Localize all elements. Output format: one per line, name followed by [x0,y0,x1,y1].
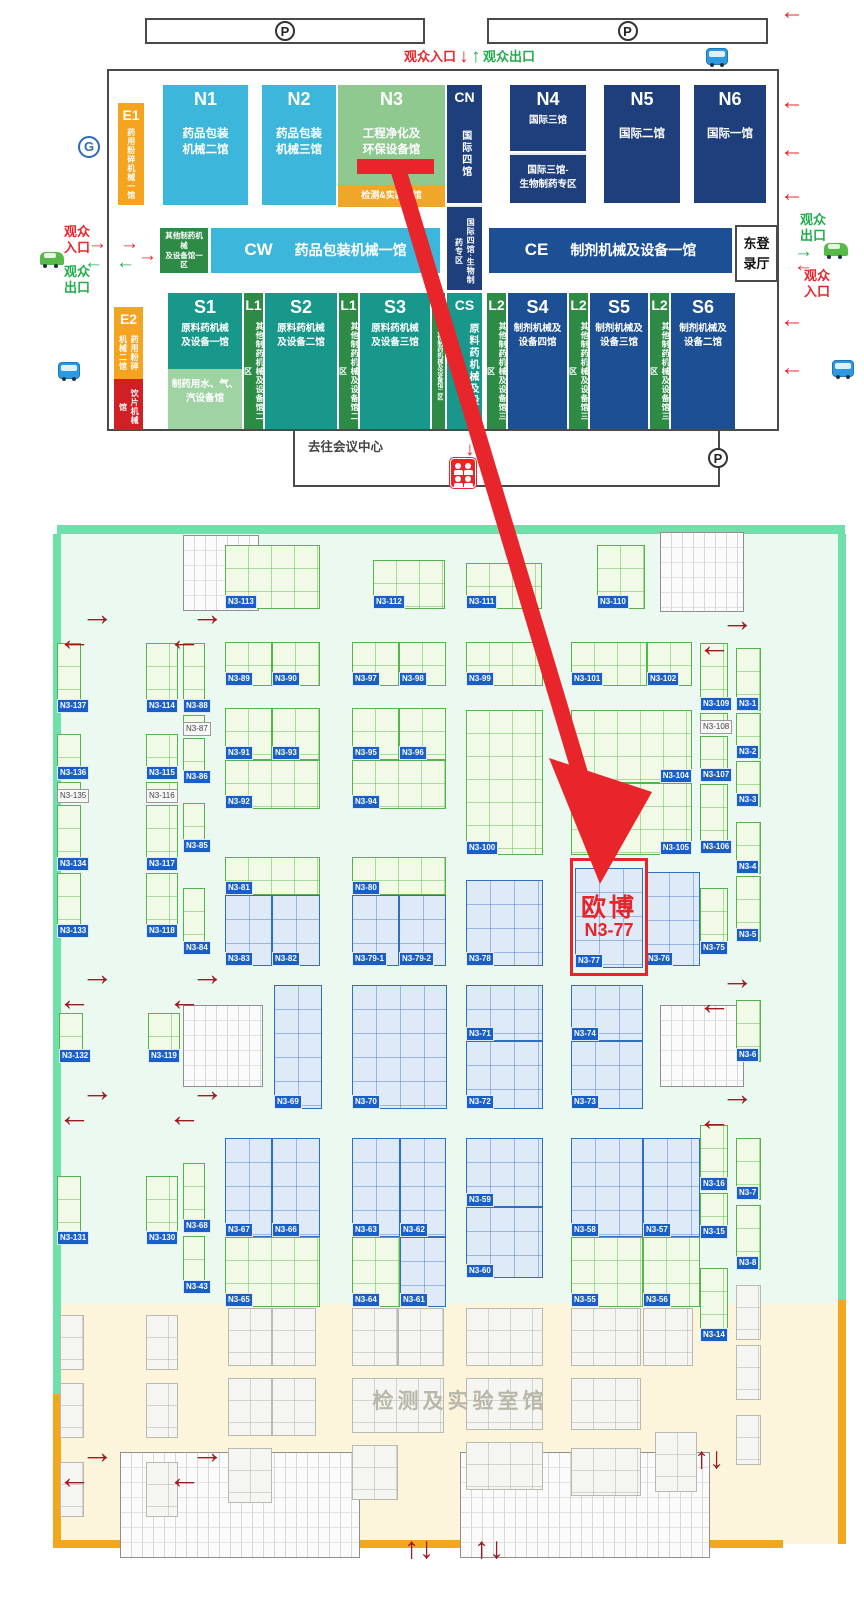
booth-label: N3-2 [736,745,759,759]
booth-N3-2: N3-2 [736,713,761,759]
expo-map-image: P P 观众入口 ↓ ↑ 观众出口 E1药用粉碎机械一馆N1药品包装 机械二馆N… [0,0,864,1600]
booth-label: N3-81 [225,881,253,895]
booth-N3-116: N3-116 [146,782,178,803]
booth-N3-57: N3-57 [643,1138,700,1237]
booth-label: N3-16 [700,1177,728,1191]
booth-N3-8: N3-8 [736,1205,761,1270]
car-icon [40,252,64,265]
booth-label: N3-102 [647,672,679,686]
booth-label: N3-83 [225,952,253,966]
booth-label: N3-100 [466,841,498,855]
booth-N3-110: N3-110 [597,545,645,609]
booth-label: N3-75 [700,941,728,955]
booth-unlabeled [352,1308,398,1366]
booth-label: N3-4 [736,860,759,874]
booth-unlabeled [571,1448,641,1496]
booth-label: N3-101 [571,672,603,686]
gate-arrow-icon: ← [780,182,804,206]
conference-down-arrow-icon: ↓ [465,440,475,459]
booth-unlabeled [272,1378,316,1436]
booth-label: N3-78 [466,952,494,966]
booth-label: N3-93 [272,746,300,760]
booth-label: N3-64 [352,1293,380,1307]
booth-label: N3-90 [272,672,300,686]
booth-label: N3-84 [183,941,211,955]
booth-N3-104: N3-104 [571,710,692,783]
entrance-arrows-icon: →← [58,602,114,652]
hall-S6: S6制剂机械及 设备二馆 [671,293,735,429]
gate-arrow-icon: ← [780,308,804,332]
booth-unlabeled [466,1442,543,1490]
booth-label: N3-63 [352,1223,380,1237]
booth-label: N3-95 [352,746,380,760]
booth-label: N3-15 [700,1225,728,1239]
booth-N3-90: N3-90 [272,642,320,686]
hall-其他制药机械及设备馆二区: 其他制药机械及设备馆二区 [432,293,445,429]
booth-label: N3-55 [571,1293,599,1307]
booth-unlabeled [736,1345,761,1400]
booth-N3-117: N3-117 [146,805,178,871]
highlight-booth-number: N3-77 [566,920,652,941]
booth-label: N3-3 [736,793,759,807]
booth-N3-74: N3-74 [571,985,643,1041]
hall-CS: CS原料药机械及设备馆 [447,293,482,429]
booth-unlabeled [466,1308,543,1366]
booth-label: N3-5 [736,928,759,942]
booth-label: N3-79-2 [399,952,434,966]
booth-label: N3-131 [57,1231,89,1245]
car-icon [824,243,848,256]
booth-unlabeled [146,1383,178,1438]
booth-unlabeled [60,1315,84,1370]
booth-unlabeled [272,1308,316,1366]
booth-N3-119: N3-119 [148,1013,180,1063]
highlight-exhibitor-name: 欧博 [566,888,652,924]
booth-N3-132: N3-132 [59,1013,83,1063]
hall-N1: N1药品包装 机械二馆 [163,85,248,205]
booth-label: N3-82 [272,952,300,966]
booth-label: N3-69 [274,1095,302,1109]
booth-N3-58: N3-58 [571,1138,643,1237]
booth-N3-82: N3-82 [272,895,320,966]
booth-unlabeled [146,1315,178,1370]
booth-label: N3-98 [399,672,427,686]
booth-N3-78: N3-78 [466,880,543,966]
booth-label: N3-117 [146,857,178,871]
entrance-arrows-icon: ↑↓ [474,1534,504,1564]
booth-label: N3-80 [352,881,380,895]
booth-label: N3-111 [466,595,497,609]
booth-label: N3-116 [146,789,178,803]
hall-CW: CW药品包装机械一馆 [211,228,440,273]
entrance-arrow-icon: → [138,246,157,265]
booth-label: N3-58 [571,1223,599,1237]
hall-N5: N5国际二馆 [604,85,680,203]
bus-icon [832,360,854,377]
parking-icon: P [275,21,295,41]
booth-label: N3-108 [700,720,732,734]
visitor-exit-label-left: 观众出口 [62,264,92,297]
booth-label: N3-57 [643,1223,671,1237]
hall-L2: L2其他制药机械及设备馆三区 [569,293,588,429]
booth-N3-55: N3-55 [571,1237,643,1307]
booth-label: N3-91 [225,746,253,760]
booth-N3-79-1: N3-79-1 [352,895,399,966]
booth-label: N3-105 [660,841,692,855]
booth-label: N3-70 [352,1095,380,1109]
entrance-arrows-icon: →← [698,966,754,1016]
booth-label: N3-72 [466,1095,494,1109]
hall-其他制药机械 及设备馆一区: 其他制药机械 及设备馆一区 [160,228,208,273]
booth-unlabeled [736,1415,761,1465]
hall-N3: N3工程净化及 环保设备馆 [338,85,445,185]
booth-N3-62: N3-62 [400,1138,446,1237]
booth-N3-92: N3-92 [225,760,320,809]
hall-L2: L2其他制药机械及设备馆三区 [487,293,506,429]
booth-N3-113: N3-113 [225,545,320,609]
hall-L1: L1其他制药机械及设备馆二区 [339,293,358,429]
entrance-arrows-icon: →← [58,1440,114,1490]
entrance-arrows-icon: →← [168,602,224,652]
booth-label: N3-109 [700,697,732,711]
gate-arrow-icon: ← [780,90,804,114]
exit-arrow-icon: ← [116,253,135,272]
booth-unlabeled [643,1308,693,1366]
booth-label: N3-136 [57,766,89,780]
booth-N3-79-2: N3-79-2 [399,895,446,966]
entrance-arrow-icon: → [88,234,107,253]
booth-unlabeled [228,1378,272,1436]
booth-unlabeled [228,1308,272,1366]
booth-N3-102: N3-102 [647,642,692,686]
booth-label: N3-71 [466,1027,494,1041]
visitor-entrance-label-right: 观众入口 [802,268,832,301]
booth-label: N3-86 [183,770,211,784]
hall-检测&实验室馆: 检测&实验室馆 [338,185,445,207]
booth-label: N3-107 [700,768,732,782]
booth-label: N3-92 [225,795,253,809]
booth-N3-94: N3-94 [352,760,446,809]
booth-N3-66: N3-66 [272,1138,320,1237]
booth-N3-136: N3-136 [57,734,81,780]
booth-N3-15: N3-15 [700,1193,728,1239]
metro-icon: G [78,136,100,158]
booth-label: N3-106 [700,840,732,854]
hall-国际三馆- 生物制药专区: 国际三馆- 生物制药专区 [510,153,586,203]
booth-label: N3-104 [660,769,692,783]
booth-N3-100: N3-100 [466,710,543,855]
hall-S4: S4制剂机械及 设备四馆 [508,293,567,429]
lab-zone-watermark: 检测及实验室馆 [330,1385,590,1415]
booth-N3-67: N3-67 [225,1138,272,1237]
entrance-arrows-icon: →← [58,962,114,1012]
booth-N3-76: N3-76 [645,872,700,966]
booth-label: N3-60 [466,1264,494,1278]
booth-N3-89: N3-89 [225,642,272,686]
booth-N3-97: N3-97 [352,642,399,686]
booth-label: N3-85 [183,839,211,853]
booth-label: N3-65 [225,1293,253,1307]
east-registration-hall: 东登 录厅 [735,225,778,282]
booth-N3-115: N3-115 [146,734,178,780]
booth-label: N3-74 [571,1027,599,1041]
booth-N3-75: N3-75 [700,888,728,955]
booth-label: N3-68 [183,1219,211,1233]
booth-label: N3-73 [571,1095,599,1109]
hall-国际四馆·生物制药专区: 国际四馆·生物制药专区 [447,205,482,290]
booth-N3-56: N3-56 [643,1237,700,1307]
booth-label: N3-118 [146,924,178,938]
booth-label: N3-130 [146,1231,178,1245]
booth-label: N3-133 [57,924,89,938]
booth-N3-4: N3-4 [736,822,761,874]
entrance-arrows-icon: →← [698,1082,754,1132]
booth-unlabeled [655,1432,697,1492]
booth-label: N3-134 [57,857,89,871]
hall-S2: S2原料药机械 及设备二馆 [265,293,337,429]
booth-label: N3-97 [352,672,380,686]
booth-N3-83: N3-83 [225,895,272,966]
booth-N3-135: N3-135 [57,782,81,803]
booth-N3-3: N3-3 [736,761,761,807]
booth-N3-65: N3-65 [225,1237,320,1307]
hall-N2: N2药品包装 机械三馆 [262,85,336,205]
to-conference-label: 去往会议中心 [308,440,383,456]
booth-N3-7: N3-7 [736,1138,761,1200]
gate-arrow-icon: ← [780,0,804,24]
booth-N3-81: N3-81 [225,857,320,895]
booth-label: N3-87 [183,722,211,736]
booth-N3-60: N3-60 [466,1207,543,1278]
booth-N3-61: N3-61 [400,1237,446,1307]
conference-icon [450,458,476,488]
booth-label: N3-113 [225,595,257,609]
booth-N3-87: N3-87 [183,715,205,736]
booth-N3-80: N3-80 [352,857,446,895]
booth-N3-86: N3-86 [183,738,205,784]
booth-label: N3-114 [146,699,178,713]
booth-label: N3-59 [466,1193,494,1207]
booth-label: N3-62 [400,1223,428,1237]
booth-N3-101: N3-101 [571,642,647,686]
hall-E1: E1药用粉碎机械一馆 [118,103,144,205]
booth-N3-133: N3-133 [57,873,81,938]
hall-L1: L1其他制药机械及设备馆二区 [244,293,263,429]
parking-strip-right: P [487,18,768,44]
booth-label: N3-89 [225,672,253,686]
booth-label: N3-132 [59,1049,91,1063]
booth-N3-106: N3-106 [700,784,728,854]
booth-label: N3-119 [148,1049,180,1063]
booth-label: N3-1 [736,697,759,711]
booth-N3-134: N3-134 [57,805,81,871]
parking-strip-left: P [145,18,425,44]
bus-icon [706,48,728,65]
hall-CN: CN国际四馆 [447,85,482,203]
booth-label: N3-135 [57,789,89,803]
entrance-arrows-icon: →← [58,1078,114,1128]
booth-label: N3-79-1 [352,952,387,966]
booth-N3-72: N3-72 [466,1041,543,1109]
booth-label: N3-8 [736,1256,759,1270]
booth-unlabeled [571,1308,641,1366]
booth-label: N3-112 [373,595,405,609]
booth-N3-43: N3-43 [183,1236,205,1294]
booth-N3-96: N3-96 [399,708,446,760]
booth-label: N3-76 [645,952,673,966]
booth-unlabeled [736,1285,761,1340]
booth-label: N3-43 [183,1280,211,1294]
hall-S1: S1原料药机械 及设备一馆 [168,293,242,369]
booth-N3-95: N3-95 [352,708,399,760]
entrance-down-arrow-icon: ↓ [459,47,469,66]
booth-label: N3-137 [57,699,89,713]
booth-N3-131: N3-131 [57,1176,81,1245]
visitor-entrance-label-top: 观众入口 [404,49,456,65]
booth-unlabeled [352,1445,398,1500]
booth-N3-105: N3-105 [571,783,692,855]
booth-N3-107: N3-107 [700,736,728,782]
booth-N3-98: N3-98 [399,642,446,686]
booth-N3-111: N3-111 [466,563,542,609]
entrance-arrows-icon: →← [168,1078,224,1128]
gate-arrow-icon: ← [780,356,804,380]
booth-unlabeled [228,1448,272,1503]
booth-N3-5: N3-5 [736,876,761,942]
booth-N3-91: N3-91 [225,708,272,760]
booth-N3-63: N3-63 [352,1138,400,1237]
entrance-arrows-icon: →← [168,1440,224,1490]
booth-N3-108: N3-108 [700,713,728,734]
hall-L2: L2其他制药机械及设备馆三区 [650,293,669,429]
hall-饮片机械馆: 饮片机械馆 [114,379,143,430]
hall-E2: E2药用粉碎机械二馆 [114,307,143,379]
booth-label: N3-14 [700,1328,728,1342]
wall-right-lab [838,1300,846,1544]
parking-icon: P [618,21,638,41]
entrance-arrow-icon: → [120,234,139,253]
booth-label: N3-88 [183,699,211,713]
booth-label: N3-94 [352,795,380,809]
entrance-arrows-icon: →← [168,962,224,1012]
bus-icon [58,362,80,379]
booth-N3-70: N3-70 [352,985,447,1109]
hall-S5: S5制剂机械及 设备三馆 [590,293,648,429]
facility-block [660,532,744,612]
entrance-arrows-icon: ↑↓ [404,1534,434,1564]
booth-label: N3-61 [400,1293,428,1307]
booth-N3-130: N3-130 [146,1176,178,1245]
hall-CE: CE制剂机械及设备一馆 [489,228,732,273]
hall-制药用水、气、 汽设备馆: 制药用水、气、 汽设备馆 [168,369,242,429]
booth-unlabeled [398,1308,444,1366]
booth-N3-64: N3-64 [352,1237,400,1307]
booth-N3-69: N3-69 [274,985,322,1109]
booth-label: N3-56 [643,1293,671,1307]
booth-N3-84: N3-84 [183,888,205,955]
hall-N6: N6国际一馆 [694,85,766,203]
booth-label: N3-115 [146,766,178,780]
hall-N4: N4国际三馆 [510,85,586,151]
booth-label: N3-96 [399,746,427,760]
booth-N3-14: N3-14 [700,1268,728,1342]
booth-label: N3-110 [597,595,629,609]
entrance-arrows-icon: →← [698,608,754,658]
booth-N3-112: N3-112 [373,560,445,609]
booth-label: N3-6 [736,1048,759,1062]
visitor-exit-label-right: 观众出口 [798,212,828,245]
booth-N3-68: N3-68 [183,1163,205,1233]
visitor-exit-label-top: 观众出口 [483,49,535,65]
exit-up-arrow-icon: ↑ [471,47,481,66]
booth-N3-59: N3-59 [466,1138,543,1207]
entrance-arrows-icon: ↑↓ [694,1444,724,1474]
booth-label: N3-99 [466,672,494,686]
gate-arrow-icon: ← [780,138,804,162]
booth-label: N3-66 [272,1223,300,1237]
parking-icon: P [708,448,728,468]
booth-N3-85: N3-85 [183,803,205,853]
booth-unlabeled [60,1383,84,1438]
booth-N3-93: N3-93 [272,708,320,760]
hall-S3: S3原料药机械 及设备三馆 [360,293,430,429]
wall-right [838,534,846,1300]
booth-N3-73: N3-73 [571,1041,643,1109]
booth-label: N3-67 [225,1223,253,1237]
booth-N3-118: N3-118 [146,873,178,938]
booth-label: N3-7 [736,1186,759,1200]
booth-N3-71: N3-71 [466,985,543,1041]
booth-N3-99: N3-99 [466,642,543,686]
